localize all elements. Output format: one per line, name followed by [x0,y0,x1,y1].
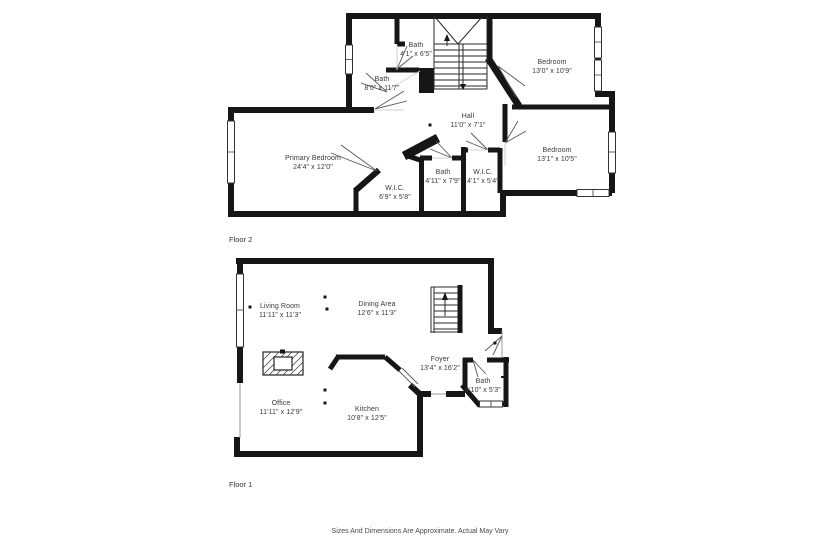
floor2-diagonal-wall-primary-door [404,138,438,156]
room-label-bath-lower-f2: Bath 4'11" x 7'9" [425,168,460,186]
floor2-diagonal-wall-bedroom [488,58,519,106]
disclaimer-text: Sizes And Dimensions Are Approximate. Ac… [332,528,509,535]
stair-up-arrow-icon [444,34,450,41]
floor1-caption: Floor 1 [229,480,252,489]
room-label-office: Office 11'11" x 12'9" [260,399,303,417]
floor2-diagonal-wall-wic [355,170,379,191]
room-label-dining-area: Dining Area 12'6" x 11'3" [357,300,396,318]
room-label-primary-bedroom: Primary Bedroom 24'4" x 12'0" [285,154,341,172]
room-label-bath-main-f2: Bath 8'0" x 11'7" [364,75,399,93]
floor1-plan [234,258,509,457]
room-label-living-room: Living Room 11'11" x 11'3" [259,302,301,320]
room-label-foyer: Foyer 13'4" x 16'2" [420,355,460,373]
stair-treads [434,50,487,86]
fireplace [263,350,303,376]
room-label-wic-small: W.I.C. 4'1" x 5'4" [467,168,499,186]
floor2-caption: Floor 2 [229,235,252,244]
floor1-kitchen-walls [330,357,400,370]
floorplan-drawing [0,0,840,559]
room-label-bedroom-right: Bedroom 13'1" x 10'5" [537,146,577,164]
floorplan-image: Bath 4'1" x 6'5" Bath 8'0" x 11'7" Bedro… [0,0,840,559]
floor2-wall-block [419,68,434,93]
stair-cut-lines [435,17,482,44]
staircase-floor2 [434,16,487,89]
room-label-bath-f1: Bath 4'10" x 5'3" [465,377,501,395]
floor1-window [237,274,244,347]
room-label-hall: Hall 11'0" x 7'1" [450,112,485,130]
room-label-wic-large: W.I.C. 6'9" x 5'8" [379,184,411,202]
room-label-bedroom-top: Bedroom 13'0" x 10'9" [532,58,572,76]
stair-rail [459,44,463,89]
room-label-kitchen: Kitchen 10'8" x 12'5" [347,405,387,423]
room-label-bath-small-f2: Bath 4'1" x 6'5" [400,41,432,59]
